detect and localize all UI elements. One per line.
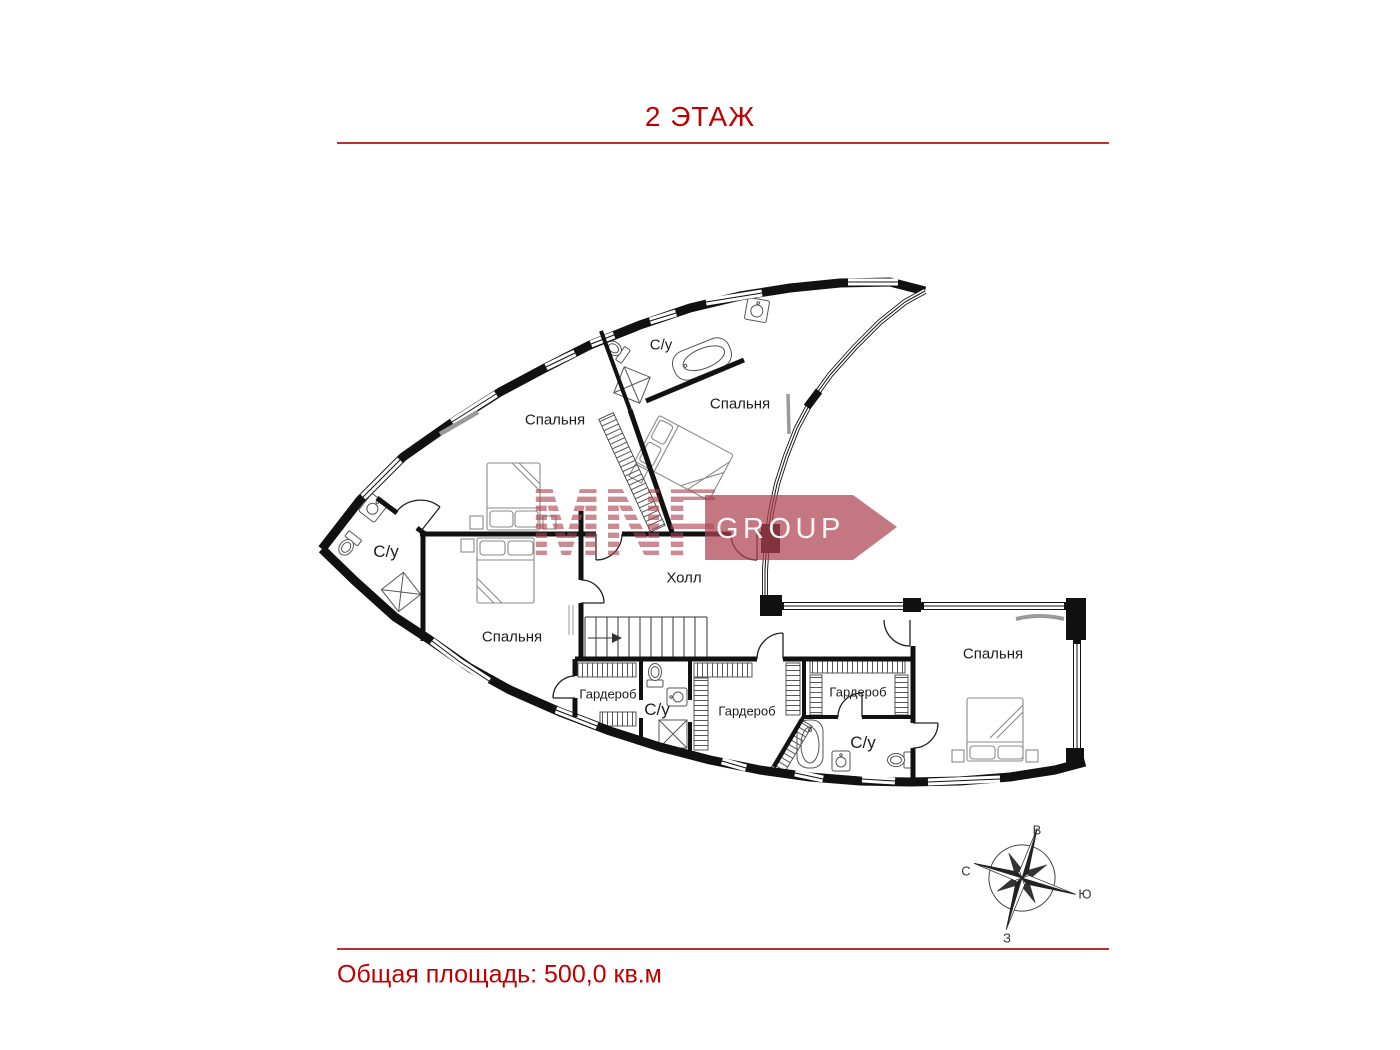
floor-plan-drawing: MNF GROUP [0,0,1400,1050]
toilet-icon [335,531,362,559]
sink-icon [832,751,850,771]
floor-plan-page: 2 ЭТАЖ [0,0,1400,1050]
toilet-icon [888,752,912,768]
footer-divider [337,948,1109,950]
watermark-group-text: GROUP [716,513,845,545]
stairs [569,605,707,659]
wardrobe-hatches [578,413,908,775]
sink-icon [744,297,769,322]
total-area-label: Общая площадь: 500,0 кв.м [337,961,662,990]
bed [461,538,534,603]
brand-watermark: MNF GROUP [530,469,897,576]
compass-rose-icon [958,814,1090,946]
watermark-brand-text: MNF [530,469,718,576]
bed [952,698,1038,762]
toilet-icon [647,664,663,688]
glass-wall [760,291,925,616]
sink-icon [667,688,687,706]
